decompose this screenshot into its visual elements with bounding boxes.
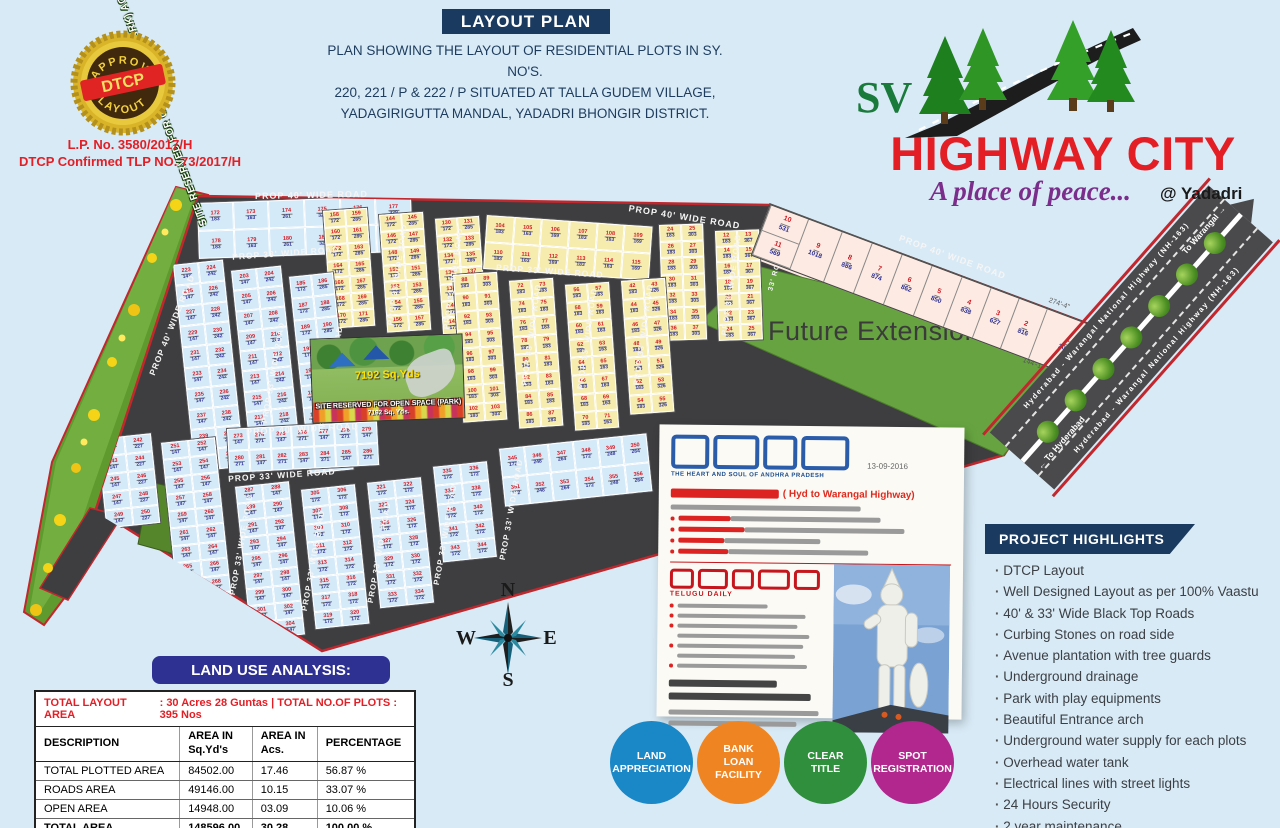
plot-cell: 284271: [314, 445, 337, 468]
plot-cell: 250227: [131, 505, 160, 526]
plot-cell: 216242: [269, 387, 296, 410]
plot-cell: 75183: [532, 296, 555, 316]
plot-cell: 146172: [380, 230, 403, 248]
plot-cell: 235147: [186, 386, 213, 409]
plot-cell: 105163: [513, 217, 542, 246]
land-use-banner: LAND USE ANALYSIS:: [152, 656, 390, 684]
logo-highway-city: HIGHWAY CITY: [853, 126, 1273, 181]
plot-cell: 238242: [213, 404, 240, 427]
telugu-bold-caption: [669, 680, 827, 689]
plot-cell: 87183: [540, 407, 563, 427]
plot-cell: 279147: [355, 421, 378, 444]
plot-cell: 72183: [509, 279, 532, 299]
plot-cell: 95303: [479, 327, 502, 347]
plot-cell: 282271: [271, 448, 294, 471]
plot-cell: 21367: [739, 292, 762, 308]
plot-cell: 144172: [379, 213, 402, 231]
plot-cell: 131285: [457, 216, 480, 234]
telugu-bullet-line: [669, 644, 827, 650]
plot-cell: 285147: [335, 444, 358, 467]
plot-block: 5618357163581835916360183611636218363163…: [564, 281, 620, 432]
plot-cell: 106169: [540, 219, 569, 248]
plot-cell: 187172: [291, 296, 315, 320]
table-row: TOTAL AREA148596.0030.28100.00 %: [36, 818, 414, 828]
plot-cell: 73183: [531, 278, 554, 298]
table-cell: 17.46: [252, 761, 317, 780]
plot-cell: 24183: [659, 224, 682, 241]
plot-cell: 27303: [682, 240, 705, 257]
feature-circle: SPOTREGISTRATION: [871, 721, 954, 804]
plot-cell: 236242: [211, 384, 238, 407]
plot-cell: 54183: [629, 394, 652, 415]
plot-cell: 109169: [623, 225, 652, 254]
plot-cell: 160172: [324, 226, 347, 244]
plot-cell: 276271: [291, 424, 314, 447]
table-cell: 10.06 %: [317, 799, 414, 818]
plot-cell: 97303: [480, 346, 503, 366]
plot-cell: 237147: [188, 407, 215, 430]
telugu-bullet-line: [670, 604, 828, 610]
plot-cell: 215147: [244, 389, 271, 412]
plot-cell: 234242: [209, 363, 236, 386]
plot-cell: 273147: [227, 428, 250, 451]
highlight-item: Underground drainage: [995, 666, 1280, 687]
telugu-text-line: [671, 505, 952, 513]
plot-cell: 223147: [173, 262, 200, 285]
plot-cell: 110183: [483, 242, 512, 271]
plot-cell: 228242: [202, 301, 229, 324]
layout-plan-banner: LAYOUT PLAN: [442, 9, 610, 34]
plot-cell: 162172: [325, 243, 348, 261]
compass-star: [474, 602, 542, 674]
table-cell: 84502.00: [180, 761, 253, 780]
plot-cell: 135285: [459, 249, 482, 267]
plot-cell: 84183: [517, 390, 540, 410]
plot-cell: 92183: [456, 310, 479, 330]
plot-cell: 225147: [175, 283, 202, 306]
plot-block: 7218373183741837518376183771837818379183…: [508, 277, 564, 430]
plot-cell: 90183: [454, 292, 477, 312]
plot-cell: 348172: [573, 439, 601, 470]
plot-cell: 278271: [334, 422, 357, 445]
plot-cell: 353264: [551, 470, 579, 501]
eenadu-masthead: 13-09-2016: [671, 435, 952, 472]
plot-cell: 206242: [258, 286, 285, 309]
plot-cell: 12183: [715, 230, 738, 246]
plot-cell: 153285: [406, 279, 429, 297]
plot-cell: 208242: [260, 306, 287, 329]
plot-cell: 343172: [441, 540, 470, 562]
plot-cell: 346248: [524, 444, 552, 475]
plot-cell: 355248: [600, 465, 628, 496]
plot-cell: 79183: [535, 333, 558, 353]
table-row: TOTAL PLOTTED AREA84502.0017.4656.87 %: [36, 761, 414, 780]
plot-cell: 81183: [536, 352, 559, 372]
plot-cell: 178183: [198, 230, 235, 259]
plot-cell: 31303: [683, 273, 706, 290]
plot-block: 2731472742712751472762712771472782712791…: [226, 420, 380, 474]
plot-cell: 155285: [407, 296, 430, 314]
plot-cell: 211147: [240, 349, 267, 372]
plot-cell: 179163: [234, 228, 271, 257]
plot-cell: 190285: [316, 316, 340, 340]
plot-cell: 93303: [478, 309, 501, 329]
telugu-text-line: [669, 654, 827, 660]
highlight-item: 24 Hours Security: [995, 794, 1280, 815]
plot-cell: 145285: [401, 212, 424, 230]
news-date: 13-09-2016: [867, 462, 908, 471]
plot-cell: 173163: [233, 200, 270, 229]
plot-cell: 48183: [625, 337, 648, 358]
telugu-footer-line: [668, 710, 826, 717]
table-cell: 56.87 %: [317, 761, 414, 780]
plot-cell: 134172: [437, 250, 460, 268]
plot-cell: 319172: [314, 609, 343, 629]
table-cell: ROADS AREA: [36, 780, 180, 799]
plot-cell: 16183: [716, 262, 739, 278]
plot-cell: 29303: [682, 257, 705, 274]
plot-cell: 231147: [182, 345, 209, 368]
plot-cell: 25303: [681, 223, 704, 240]
plot-cell: 14183: [716, 246, 739, 262]
highlight-item: DTCP Layout: [995, 560, 1280, 581]
plot-cell: 186285: [311, 272, 335, 296]
plot-cell: 150172: [383, 264, 406, 282]
park-photo: 7192 Sq.Yds SITE RESERVED FOR OPEN SPACE…: [310, 333, 466, 423]
plot-cell: 351172: [502, 475, 530, 506]
feature-circle: CLEARTITLE: [784, 721, 867, 804]
plot-cell: 274271: [248, 427, 271, 450]
playground-canopy: [363, 345, 389, 360]
telugu-bullet-line: [671, 516, 952, 524]
project-highlights-list: DTCP LayoutWell Designed Layout as per 1…: [995, 560, 1280, 828]
plot-cell: 50183: [626, 356, 649, 377]
plot-cell: 157285: [408, 313, 431, 331]
table-header: AREA INSq.Yd's: [180, 727, 253, 761]
compass-n: N: [501, 580, 516, 601]
plot-cell: 213147: [242, 369, 269, 392]
plot-cell: 224242: [198, 260, 225, 283]
highlight-item: Underground water supply for each plots: [995, 730, 1280, 751]
plot-cell: 188285: [313, 294, 337, 318]
plot-cell: 350264: [622, 433, 650, 464]
table-cell: 03.09: [252, 799, 317, 818]
highlight-item: Park with play equipments: [995, 688, 1280, 709]
plot-cell: 86183: [518, 409, 541, 429]
plot-cell: 334172: [405, 585, 434, 606]
plot-cell: 275147: [270, 426, 293, 449]
plot-block: 3051723061723071723081723091723101723111…: [300, 483, 371, 630]
telugu-bullet-line: [670, 538, 951, 546]
dtcp-approved-badge: APPROVED LAYOUT DTCP: [68, 28, 178, 138]
plot-cell: 59163: [588, 300, 611, 320]
plot-cell: 156172: [386, 314, 409, 332]
table-cell: OPEN AREA: [36, 799, 180, 818]
feature-circle: BANKLOANFACILITY: [697, 721, 780, 804]
plot-cell: 230242: [204, 322, 231, 345]
plot-cell: 111163: [511, 244, 540, 273]
plot-cell: 345172: [499, 446, 527, 477]
plot-cell: 108163: [595, 223, 624, 252]
plot-cell: 63163: [591, 336, 614, 356]
table-cell: TOTAL PLOTTED AREA: [36, 761, 180, 780]
table-cell: 100.00 %: [317, 818, 414, 828]
lp-number: L.P. No. 3580/2017/H DTCP Confirmed TLP …: [10, 136, 250, 170]
logo-location: @ Yadadri: [1160, 184, 1242, 204]
plot-cell: 174261: [268, 199, 305, 228]
plot-cell: 159285: [345, 208, 368, 226]
plot-cell: 226242: [200, 280, 227, 303]
plot-cell: 103303: [484, 401, 507, 421]
plot-cell: 67163: [593, 373, 616, 393]
plot-cell: 286271: [357, 443, 380, 466]
plot-cell: 85183: [539, 389, 562, 409]
plot-cell: 88183: [453, 273, 476, 293]
plot-cell: 47326: [646, 316, 669, 337]
brochure-page: 1721831731631742611753211763331773391781…: [0, 0, 1280, 828]
plot-cell: 344172: [468, 538, 497, 560]
plot-cell: 82183: [516, 372, 539, 392]
plot-cell: 132172: [436, 234, 459, 252]
playground-canopy: [329, 352, 355, 367]
plot-cell: 277147: [313, 423, 336, 446]
logo-sv: SV: [856, 72, 912, 123]
plot-cell: 26183: [660, 241, 683, 258]
plot-cell: 163285: [347, 241, 370, 259]
project-highlights-banner: PROJECT HIGHLIGHTS: [985, 524, 1195, 554]
andhra-jyothi-column: TELUGU DAILY: [668, 563, 828, 728]
andhra-jyothi-masthead: [670, 569, 828, 591]
plot-cell: 46183: [624, 318, 647, 339]
plot-cell: 171285: [352, 309, 375, 327]
plot-cell: 152172: [384, 281, 407, 299]
plot-cell: 35303: [684, 306, 707, 323]
plot-cell: 42183: [621, 279, 644, 300]
plot-block: 1441721452851461721472851481721492851501…: [378, 211, 432, 334]
telugu-bullet-line: [670, 614, 828, 620]
plot-cell: 58183: [566, 302, 589, 322]
plot-cell: 207147: [235, 309, 262, 332]
plot-cell: 20183: [717, 293, 740, 309]
plot-cell: 347264: [548, 441, 576, 472]
plot-cell: 333172: [378, 587, 407, 608]
plan-description: PLAN SHOWING THE LAYOUT OF RESIDENTIAL P…: [310, 40, 740, 124]
plot-cell: 212242: [264, 346, 291, 369]
plot-cell: 56183: [565, 283, 588, 303]
table-cell: 30.28: [252, 818, 317, 828]
plot-cell: 44183: [622, 298, 645, 319]
plot-cell: 205147: [233, 288, 260, 311]
plot-cell: 99303: [481, 364, 504, 384]
plot-cell: 154172: [385, 297, 408, 315]
plot-cell: 62183: [569, 338, 592, 358]
plot-cell: 229147: [180, 324, 207, 347]
highlight-item: 40' & 33' Wide Black Top Roads: [995, 603, 1280, 624]
plot-cell: 49326: [647, 335, 670, 356]
plot-block: 4218343326441834532646183473264818349326…: [620, 277, 675, 416]
table-cell: 49146.00: [180, 780, 253, 799]
plot-cell: 204242: [256, 266, 283, 289]
plot-cell: 68183: [573, 393, 596, 413]
plot-cell: 61163: [590, 318, 613, 338]
plot-cell: 17367: [738, 261, 761, 277]
plot-cell: 18183: [717, 277, 740, 293]
newspaper-clipping: 13-09-2016 THE HEART AND SOUL OF ANDHRA …: [656, 424, 964, 719]
plot-cell: 227147: [177, 304, 204, 327]
table-cell: 10.15: [252, 780, 317, 799]
plot-cell: 209147: [237, 329, 264, 352]
plot-cell: 24183: [718, 324, 741, 340]
telugu-bullet-line: [669, 664, 827, 670]
plot-cell: 65163: [592, 355, 615, 375]
plot-cell: 23367: [740, 308, 763, 324]
plot-cell: 76183: [512, 316, 535, 336]
plot-cell: 33303: [683, 290, 706, 307]
table-row: ROADS AREA49146.0010.1533.07 %: [36, 780, 414, 799]
logo-trees-road: [905, 20, 1145, 140]
plot-block: 1041831051631061691071831081631091691101…: [482, 214, 653, 282]
plot-cell: 51326: [648, 354, 671, 375]
plot-cell: 77183: [534, 315, 557, 335]
plot-cell: 161285: [346, 225, 369, 243]
plot-cell: 43326: [643, 278, 666, 299]
plot-cell: 74183: [510, 298, 533, 318]
plot-block: 3211723221723231723241723251723261723271…: [366, 476, 435, 609]
plot-cell: 102183: [462, 403, 485, 423]
plot-cell: 185172: [289, 275, 313, 299]
telugu-bold-caption: [669, 693, 827, 702]
plot-cell: 210242: [262, 326, 289, 349]
telugu-daily-label: TELUGU DAILY: [670, 591, 828, 600]
plot-cell: 60183: [568, 320, 591, 340]
plot-cell: 45326: [644, 297, 667, 318]
compass-e: E: [543, 627, 556, 649]
compass-rose: N W E S: [448, 580, 568, 690]
plot-cell: 130172: [435, 217, 458, 235]
highlight-item: Electrical lines with street lights: [995, 773, 1280, 794]
plot-cell: 25367: [740, 324, 763, 340]
plot-cell: 148172: [381, 247, 404, 265]
plot-cell: 203147: [231, 268, 258, 291]
highlight-item: Well Designed Layout as per 100% Vaastu: [995, 581, 1280, 602]
plot-cell: 52183: [628, 375, 651, 396]
telugu-bullet-line: [669, 624, 827, 630]
highlight-item: 2 year maintenance: [995, 816, 1280, 828]
plot-cell: 64183: [570, 356, 593, 376]
plot-cell: 101303: [483, 383, 506, 403]
total-layout-line: TOTAL LAYOUT AREA : 30 Acres 28 Guntas |…: [36, 692, 414, 727]
plot-cell: 165285: [349, 258, 372, 276]
plot-cell: 280271: [228, 450, 251, 473]
plot-cell: 283147: [292, 446, 315, 469]
table-header: PERCENTAGE: [317, 727, 414, 761]
plot-block: 3451723462483472643481723492483502643511…: [498, 432, 653, 507]
plot-block: 3351723361723371723381723391723401723411…: [432, 460, 498, 563]
telugu-bullet-line: [670, 549, 951, 557]
highlight-item: Avenue plantation with tree guards: [995, 645, 1280, 666]
plot-cell: 69163: [595, 391, 618, 411]
plot-cell: 320172: [341, 606, 370, 626]
plot-cell: 91303: [476, 290, 499, 310]
table-header: AREA INAcs.: [252, 727, 317, 761]
feature-circle: LANDAPPRECIATION: [610, 721, 693, 804]
highlight-item: Curbing Stones on road side: [995, 624, 1280, 645]
plot-cell: 151285: [405, 262, 428, 280]
plot-cell: 169285: [351, 292, 374, 310]
plot-cell: 89303: [475, 272, 498, 292]
hanuman-statue-photo: [832, 564, 950, 733]
news-headline-en: ( Hyd to Warangal Highway): [783, 489, 915, 501]
plot-cell: 115169: [621, 252, 650, 281]
plot-cell: 214242: [267, 367, 294, 390]
plot-cell: 104183: [485, 215, 514, 244]
table-cell: 148596.00: [180, 818, 253, 828]
plot-cell: 158172: [323, 209, 346, 227]
plot-cell: 232242: [207, 342, 234, 365]
table-row: OPEN AREA14948.0003.0910.06 %: [36, 799, 414, 818]
plot-cell: 80183: [514, 353, 537, 373]
plot-cell: 233147: [184, 366, 211, 389]
plot-cell: 352248: [527, 473, 555, 504]
plot-cell: 349248: [597, 436, 625, 467]
table-cell: TOTAL AREA: [36, 818, 180, 828]
plot-cell: 71163: [596, 409, 619, 429]
plot-cell: 149285: [403, 245, 426, 263]
plot-cell: 28183: [660, 257, 683, 274]
plot-cell: 70183: [574, 411, 597, 431]
news-headline: ( Hyd to Warangal Highway): [671, 488, 952, 502]
plot-cell: 22183: [718, 309, 741, 325]
table-cell: 14948.00: [180, 799, 253, 818]
plot-cell: 37303: [684, 323, 707, 340]
plot-cell: 55326: [651, 392, 674, 413]
telugu-text-line: [669, 634, 827, 640]
plot-cell: 114163: [594, 250, 623, 279]
plot-cell: 78183: [513, 335, 536, 355]
plot-cell: 57163: [587, 282, 610, 302]
plot-cell: 133285: [458, 232, 481, 250]
plot-cell: 19367: [739, 277, 762, 293]
logo-tagline: A place of peace...: [930, 176, 1131, 207]
plot-cell: 354172: [576, 467, 604, 498]
plot-cell: 180261: [269, 227, 306, 256]
highlight-item: Overhead water tank: [995, 752, 1280, 773]
plot-cell: 147285: [402, 229, 425, 247]
pine-tree-icon: [959, 28, 1007, 110]
highlight-item: Beautiful Entrance arch: [995, 709, 1280, 730]
plot-cell: 167285: [350, 275, 373, 293]
pine-tree-icon: [919, 36, 971, 124]
table-header: DESCRIPTION: [36, 727, 180, 761]
compass-w: W: [456, 627, 476, 649]
plot-cell: 83183: [537, 370, 560, 390]
plot-cell: 66183: [571, 374, 594, 394]
telugu-bullet-line: [670, 527, 951, 535]
plot-cell: 281147: [250, 449, 273, 472]
plot-cell: 113183: [566, 248, 595, 277]
eenadu-tagline: THE HEART AND SOUL OF ANDHRA PRADESH: [671, 472, 952, 481]
plot-cell: 107183: [568, 221, 597, 250]
land-use-table: TOTAL LAYOUT AREA : 30 Acres 28 Guntas |…: [34, 690, 416, 828]
table-cell: 33.07 %: [317, 780, 414, 799]
plot-cell: 112169: [538, 246, 567, 275]
plot-cell: 53326: [650, 373, 673, 394]
plot-cell: 356264: [625, 462, 653, 493]
